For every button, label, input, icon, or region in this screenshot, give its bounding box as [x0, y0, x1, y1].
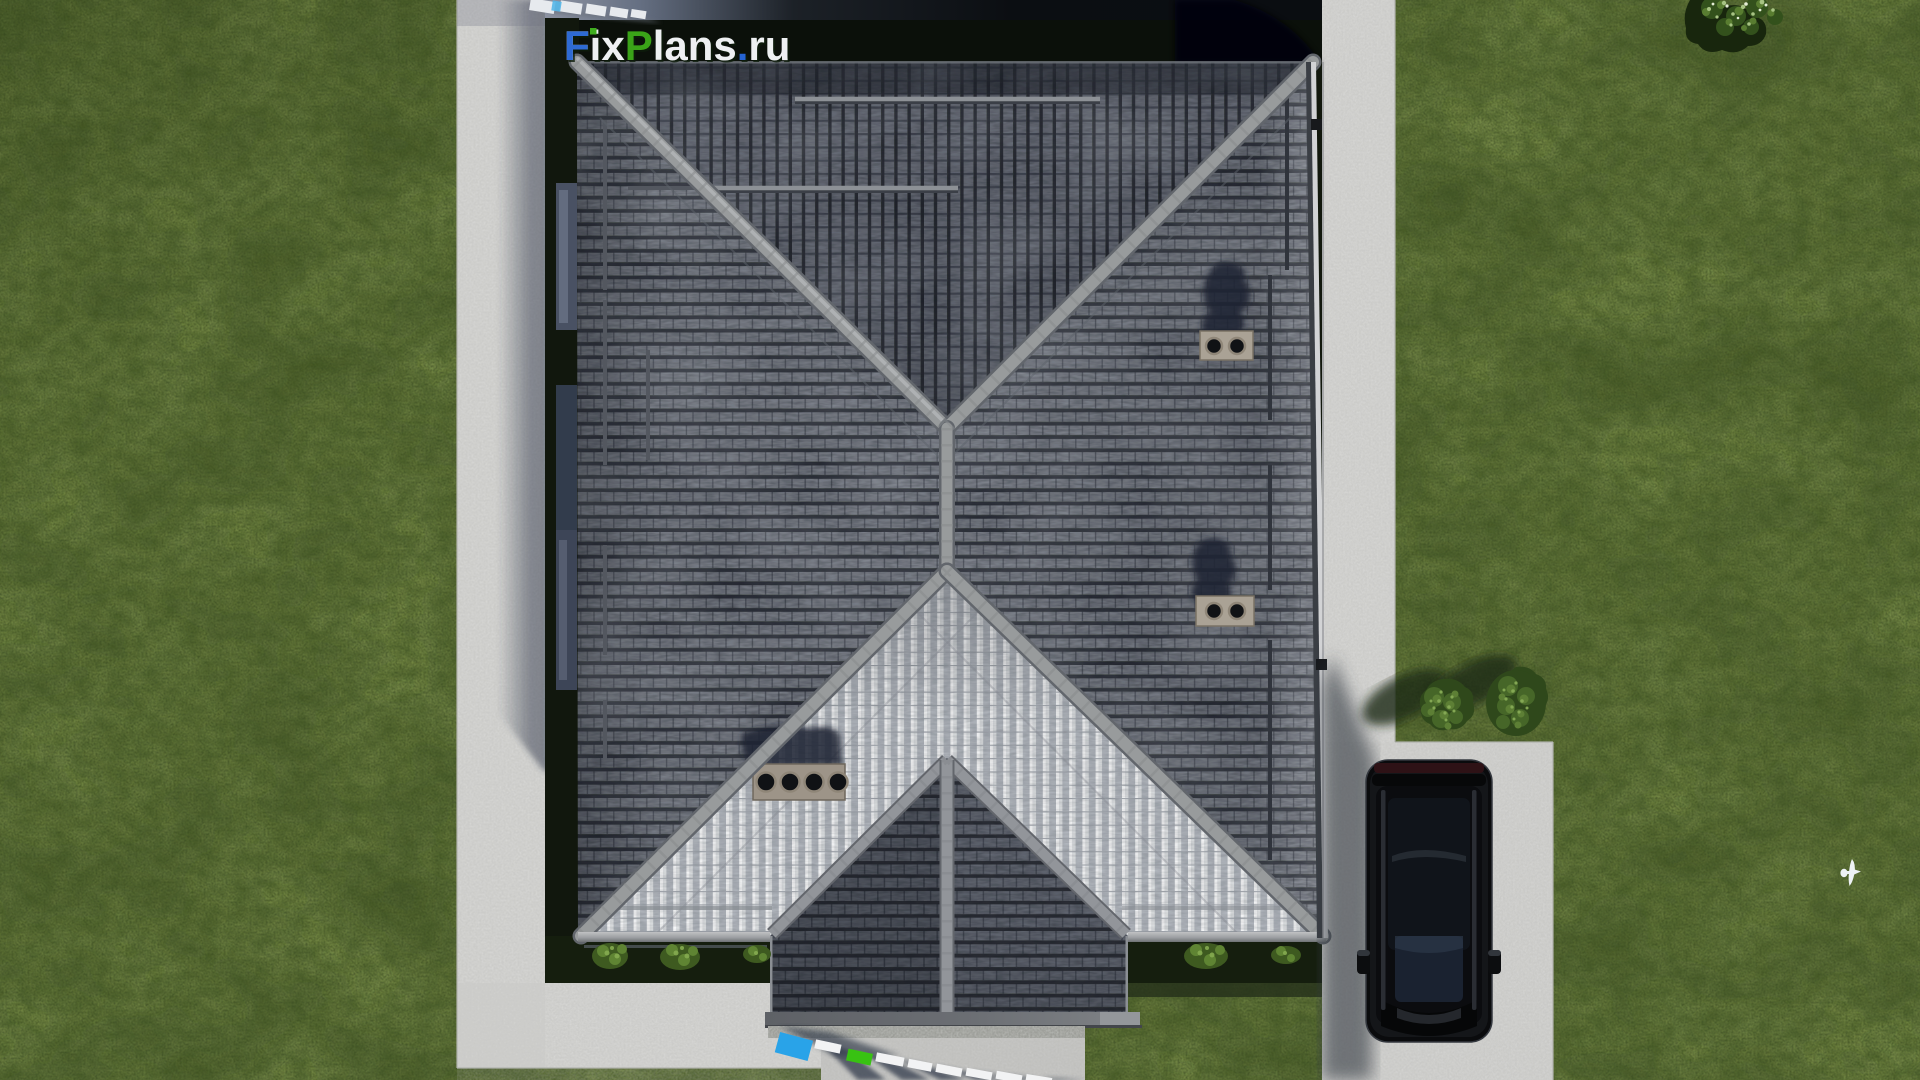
- svg-text:FixPlans.ru: FixPlans.ru: [564, 22, 790, 69]
- svg-text:F: F: [564, 22, 590, 69]
